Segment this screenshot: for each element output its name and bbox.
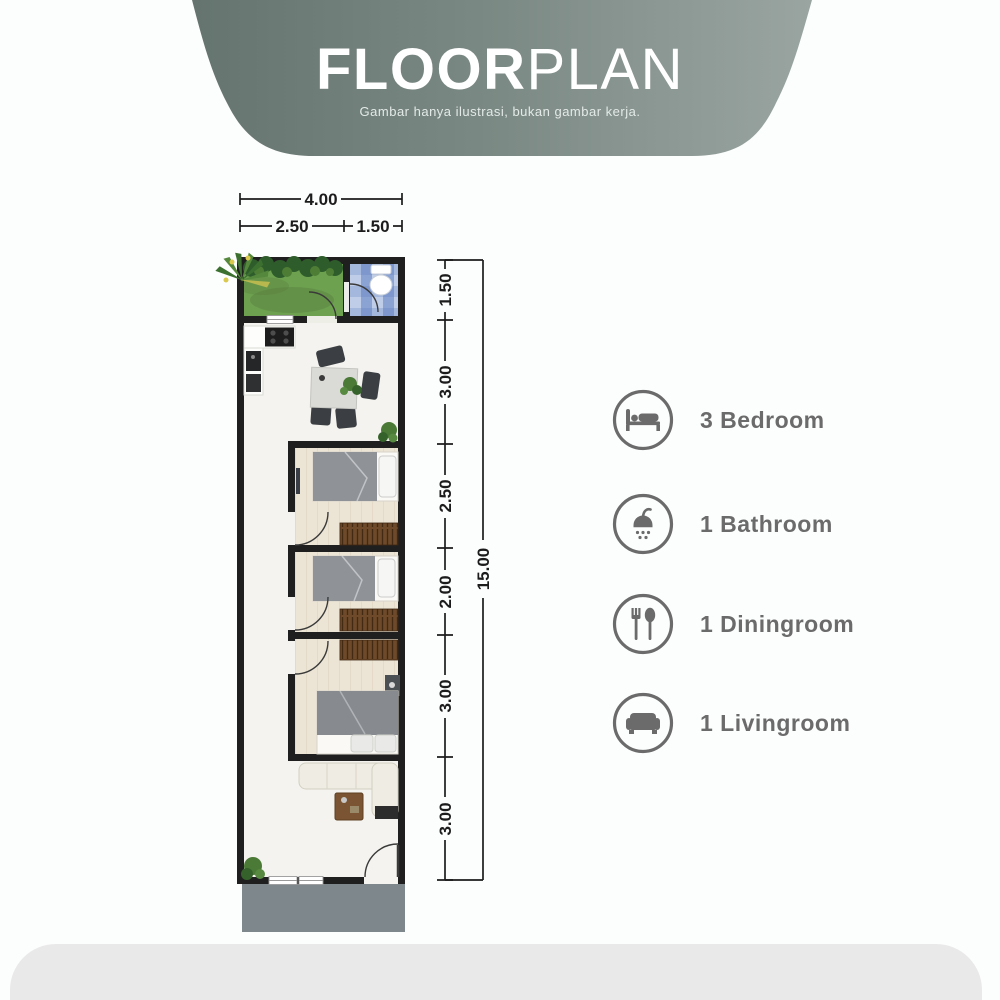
cutlery-icon [612, 593, 674, 655]
toilet [370, 265, 392, 295]
window [269, 877, 297, 885]
dim-right-5: 3.00 [436, 679, 455, 712]
legend-label-livingroom: 1 Livingroom [700, 710, 850, 737]
legend-label-bedroom: 3 Bedroom [700, 407, 825, 434]
wardrobe [340, 640, 398, 660]
dim-right-4: 2.00 [436, 575, 455, 608]
page-subtitle: Gambar hanya ilustrasi, bukan gambar ker… [0, 104, 1000, 119]
shower-icon [612, 493, 674, 555]
dim-top-right: 1.50 [356, 217, 389, 236]
window [267, 316, 293, 324]
dim-right-3: 2.50 [436, 479, 455, 512]
sofa-icon [612, 692, 674, 754]
wardrobe [340, 523, 398, 545]
dim-top-total: 4.00 [304, 190, 337, 209]
legend-item-bedroom: 3 Bedroom [612, 389, 825, 451]
dim-right-2: 3.00 [436, 365, 455, 398]
legend-label-bathroom: 1 Bathroom [700, 511, 833, 538]
kitchen-appliance [246, 374, 261, 392]
footer-band [10, 944, 982, 1000]
title-light: PLAN [526, 37, 684, 102]
sink [246, 351, 261, 371]
legend-item-bathroom: 1 Bathroom [612, 493, 833, 555]
dim-right-6: 3.00 [436, 802, 455, 835]
legend-item-diningroom: 1 Diningroom [612, 593, 854, 655]
legend-item-livingroom: 1 Livingroom [612, 692, 850, 754]
dim-right-1: 1.50 [436, 273, 455, 306]
page-title: FLOORPLAN [0, 40, 1000, 101]
cooktop [265, 328, 294, 347]
floorplan: 4.00 2.50 1.50 1.50 3.00 2.50 2.00 3.00 … [200, 180, 520, 950]
legend-label-diningroom: 1 Diningroom [700, 611, 854, 638]
title-bold: FLOOR [316, 37, 526, 102]
porch [242, 884, 405, 932]
dim-right-total: 15.00 [474, 548, 493, 591]
dim-top-left: 2.50 [275, 217, 308, 236]
bed-icon [612, 389, 674, 451]
wardrobe [340, 609, 398, 631]
side-table [375, 806, 398, 819]
window [299, 877, 323, 885]
